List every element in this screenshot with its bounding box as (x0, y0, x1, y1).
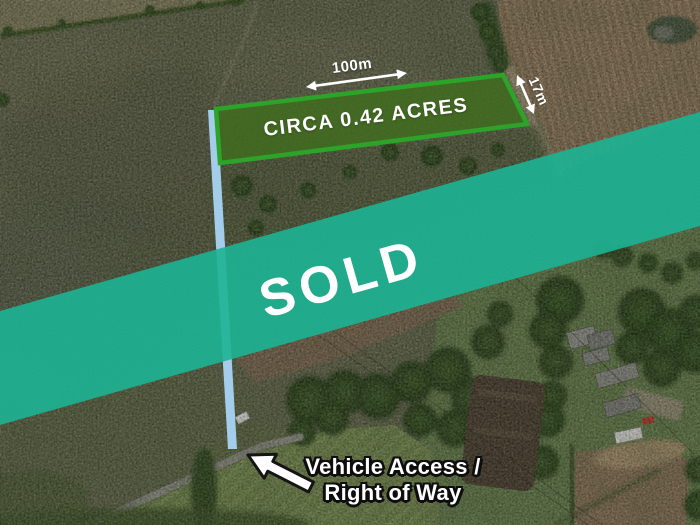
access-label-line2: Right of Way (305, 480, 480, 506)
access-label: Vehicle Access / Right of Way (305, 454, 480, 506)
aerial-property-image: CIRCA 0.42 ACRES 100m 17m SOLD Vehicle A… (0, 0, 700, 525)
access-label-line1: Vehicle Access / (305, 454, 480, 480)
